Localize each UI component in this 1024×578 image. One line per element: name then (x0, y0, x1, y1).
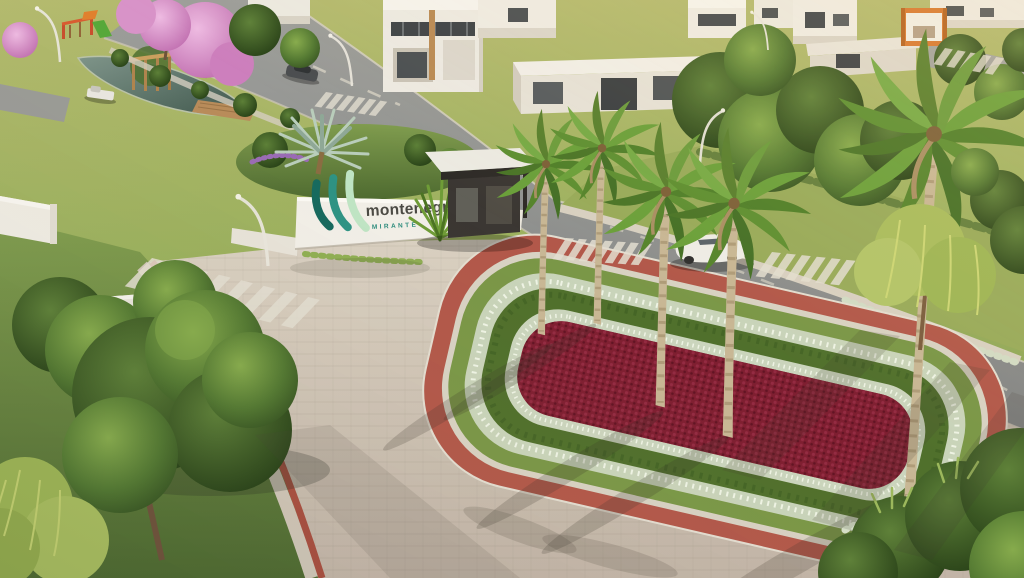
sunlight-overlay (0, 0, 1024, 578)
aerial-render-image: montenegro MIRANTE (0, 0, 1024, 578)
scene-svg: montenegro MIRANTE (0, 0, 1024, 578)
